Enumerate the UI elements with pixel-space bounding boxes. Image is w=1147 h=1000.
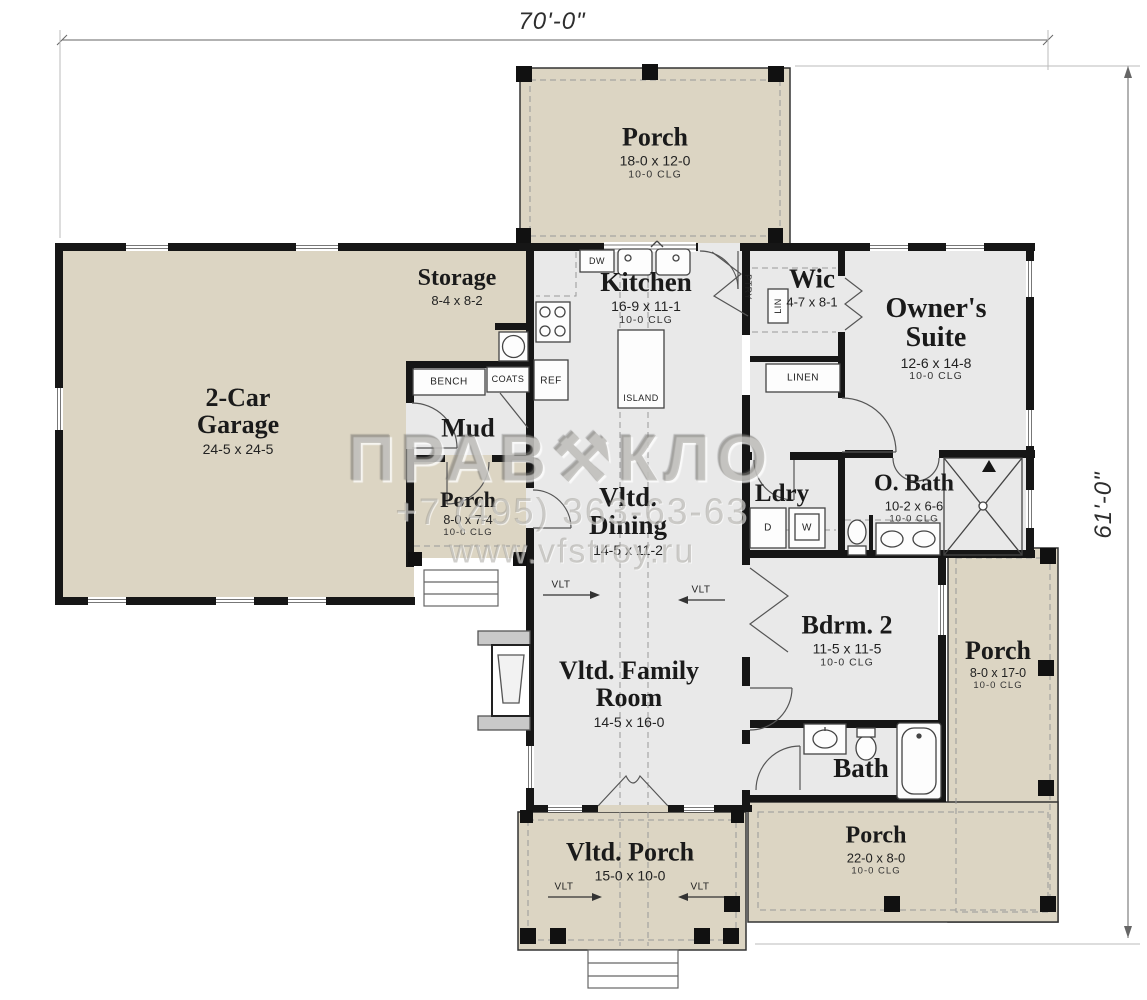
room-name: Porch	[965, 637, 1031, 664]
room-dim: 10-2 x 6-6	[874, 500, 954, 514]
room-name: Vltd. Dining	[576, 483, 681, 540]
bathtub	[897, 723, 941, 799]
room-name: Porch	[846, 824, 907, 849]
room-name: Mud	[441, 414, 494, 441]
room-name: Kitchen	[600, 268, 692, 296]
linen-label: LINEN	[787, 373, 819, 384]
coats-label: COATS	[492, 374, 525, 384]
room-name: Porch	[440, 488, 496, 511]
room-dim: 12-6 x 14-8	[869, 356, 1004, 371]
porch-top-label: Porch 18-0 x 12-0 10-0 CLG	[620, 124, 691, 181]
room-name: Bath	[833, 754, 889, 782]
room-clg: 10-0 CLG	[802, 657, 893, 668]
mud-label: Mud	[441, 414, 494, 441]
room-dim: 18-0 x 12-0	[620, 154, 691, 169]
vltd-porch-label: Vltd. Porch 15-0 x 10-0	[566, 839, 694, 884]
fireplace	[478, 631, 530, 730]
owners-bath-label: O. Bath 10-2 x 6-6 10-0 CLG	[874, 472, 954, 525]
room-name: Storage	[418, 266, 497, 291]
washer-label: W	[802, 523, 812, 534]
dishwasher-label: DW	[589, 256, 605, 266]
room-dim: 11-5 x 11-5	[802, 642, 893, 657]
room-clg: 10-0 CLG	[869, 371, 1004, 382]
storage-label: Storage 8-4 x 8-2	[418, 266, 497, 308]
room-dim: 16-9 x 11-1	[600, 299, 692, 314]
lin-label: LIN	[773, 298, 783, 314]
porch-left-label: Porch 8-0 x 7-4 10-0 CLG	[440, 488, 496, 538]
dryer-label: D	[764, 523, 772, 534]
vault-label-dining-right: VLT	[691, 585, 710, 596]
stove	[536, 302, 570, 342]
room-dim: 14-5 x 11-2	[576, 543, 681, 558]
island-label: ISLAND	[623, 393, 659, 403]
front-steps	[588, 950, 678, 988]
room-clg: 10-0 CLG	[620, 169, 691, 180]
room-name: Ldry	[755, 481, 809, 507]
room-name: Porch	[620, 124, 691, 151]
room-clg: 10-0 CLG	[440, 528, 496, 538]
room-name: Vltd. Porch	[566, 839, 694, 866]
bath-sink	[804, 724, 846, 754]
ref-label: REF	[540, 376, 562, 387]
room-name: 2-Car Garage	[178, 384, 298, 439]
kitchen-label: Kitchen 16-9 x 11-1 10-0 CLG	[600, 268, 692, 326]
overall-width-dimension: 70'-0"	[518, 8, 585, 36]
room-dim: 8-0 x 7-4	[440, 514, 496, 527]
family-room-label: Vltd. Family Room 14-5 x 16-0	[547, 657, 712, 729]
dining-label: Vltd. Dining 14-5 x 11-2	[576, 483, 681, 557]
room-clg: 10-0 CLG	[846, 866, 907, 876]
overall-height-dimension: 61'-0"	[1090, 471, 1118, 538]
room-name: Wic	[786, 265, 837, 293]
room-dim: 15-0 x 10-0	[566, 869, 694, 884]
room-clg: 10-0 CLG	[874, 514, 954, 524]
wic-label: Wic 4-7 x 8-1	[786, 265, 837, 310]
room-name: Vltd. Family Room	[547, 657, 712, 712]
room-clg: 10-0 CLG	[600, 315, 692, 326]
room-dim: 8-0 x 17-0	[965, 667, 1031, 680]
bedroom2-label: Bdrm. 2 11-5 x 11-5 10-0 CLG	[802, 612, 893, 669]
room-dim: 22-0 x 8-0	[846, 852, 907, 866]
pantry-label: PTRY	[743, 274, 753, 300]
bench-label: BENCH	[430, 377, 468, 388]
vault-label-porch-right: VLT	[690, 882, 709, 893]
room-dim: 8-4 x 8-2	[418, 294, 497, 308]
porch-bottom-label: Porch 22-0 x 8-0 10-0 CLG	[846, 824, 907, 877]
room-name: Bdrm. 2	[802, 612, 893, 639]
vault-label-porch-left: VLT	[554, 882, 573, 893]
owners-bath-vanity	[876, 523, 940, 555]
owners-bath-toilet	[848, 520, 866, 555]
water-heater	[499, 332, 528, 361]
owners-suite-label: Owner's Suite 12-6 x 14-8 10-0 CLG	[869, 294, 1004, 382]
floor-plan-page: Porch 18-0 x 12-0 10-0 CLG Storage 8-4 x…	[0, 0, 1147, 1000]
room-name: O. Bath	[874, 472, 954, 497]
garage-label: 2-Car Garage 24-5 x 24-5	[178, 384, 298, 456]
garage-porch-steps	[424, 570, 498, 606]
room-clg: 10-0 CLG	[965, 681, 1031, 691]
porch-right-label: Porch 8-0 x 17-0 10-0 CLG	[965, 637, 1031, 691]
laundry-label: Ldry	[755, 481, 809, 507]
room-dim: 24-5 x 24-5	[178, 441, 298, 456]
vault-label-dining-left: VLT	[551, 580, 570, 591]
bath-label: Bath	[833, 754, 889, 782]
room-dim: 14-5 x 16-0	[547, 714, 712, 729]
room-name: Owner's Suite	[869, 294, 1004, 353]
room-dim: 4-7 x 8-1	[786, 296, 837, 310]
